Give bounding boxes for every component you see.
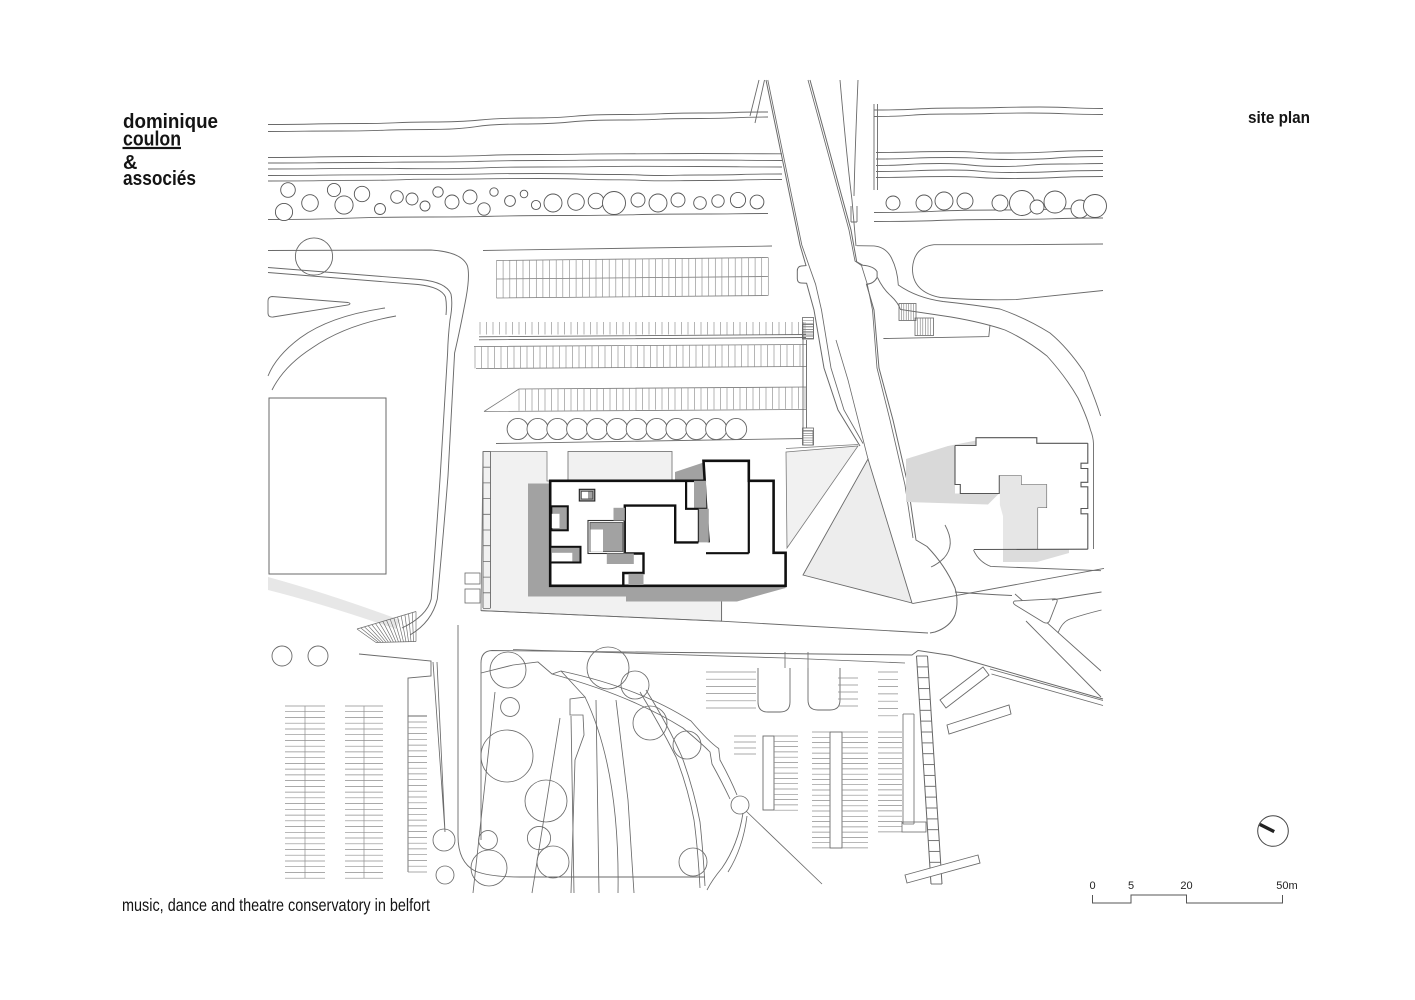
svg-text:associés: associés [123,168,196,190]
svg-text:site plan: site plan [1248,108,1310,127]
svg-text:5: 5 [1128,880,1134,892]
svg-text:0: 0 [1089,880,1095,892]
svg-text:20: 20 [1180,880,1192,892]
svg-text:50m: 50m [1276,880,1297,892]
svg-text:music, dance and theatre conse: music, dance and theatre conservatory in… [122,895,430,915]
